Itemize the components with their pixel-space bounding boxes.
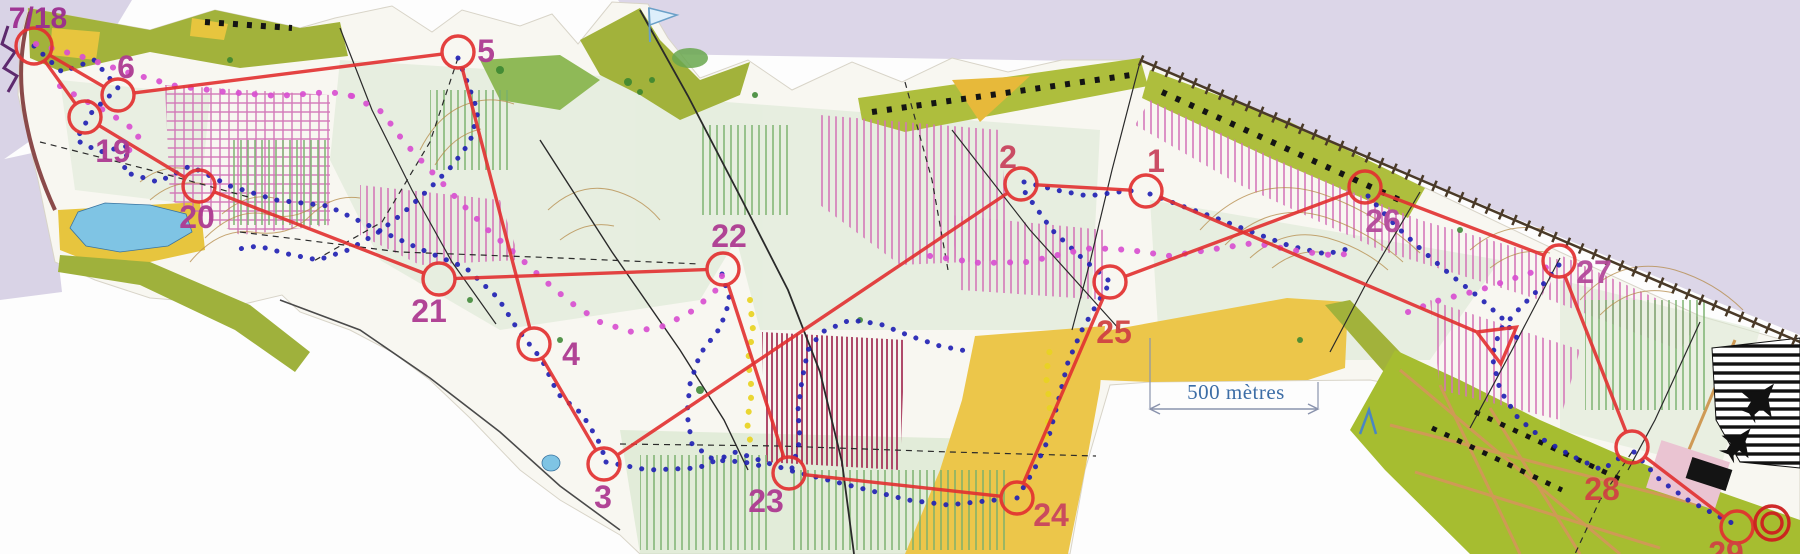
scale-label: 500 mètres (1152, 380, 1320, 405)
control-number-4: 4 (562, 336, 580, 372)
control-number-3: 3 (594, 479, 612, 515)
control-number-23: 23 (748, 483, 784, 519)
control-number-29: 29 (1708, 535, 1744, 554)
control-number-22: 22 (711, 218, 747, 254)
pond (542, 455, 560, 471)
control-number-1: 1 (1147, 143, 1165, 179)
control-number-2: 2 (999, 139, 1017, 175)
orienteering-map: 7/181234561920212223242526272829 500 mèt… (0, 0, 1800, 554)
control-number-27: 27 (1576, 254, 1612, 290)
control-number-5: 5 (477, 33, 495, 69)
control-number-26: 26 (1365, 203, 1401, 239)
control-number-28: 28 (1584, 471, 1620, 507)
control-number-20: 20 (179, 199, 215, 235)
control-number-6: 6 (117, 49, 135, 85)
control-number-25: 25 (1096, 314, 1132, 350)
control-number-19: 19 (95, 133, 131, 169)
control-number-21: 21 (411, 293, 447, 329)
control-number-718: 7/18 (9, 2, 67, 35)
control-number-24: 24 (1033, 497, 1069, 533)
